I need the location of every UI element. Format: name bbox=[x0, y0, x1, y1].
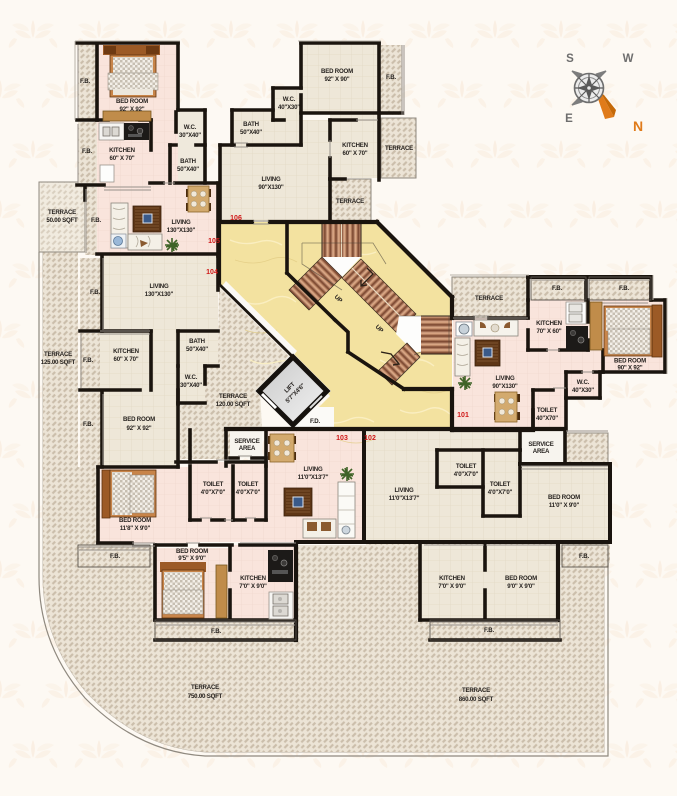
svg-text:BATH: BATH bbox=[189, 338, 205, 345]
svg-text:120.00 SQFT: 120.00 SQFT bbox=[216, 401, 251, 408]
svg-text:11'0"X13'7": 11'0"X13'7" bbox=[298, 474, 329, 481]
svg-text:F.B.: F.B. bbox=[211, 628, 222, 635]
svg-text:LIVING: LIVING bbox=[171, 219, 191, 226]
svg-text:TERRACE: TERRACE bbox=[336, 198, 364, 205]
svg-text:TERRACE: TERRACE bbox=[191, 684, 219, 691]
svg-text:50"X40": 50"X40" bbox=[240, 129, 262, 136]
svg-text:TOILET: TOILET bbox=[456, 463, 477, 470]
svg-text:TOILET: TOILET bbox=[238, 481, 259, 488]
svg-text:LIVING: LIVING bbox=[394, 487, 414, 494]
svg-text:BED ROOM: BED ROOM bbox=[548, 494, 580, 501]
svg-text:11'8" X 9'0": 11'8" X 9'0" bbox=[120, 525, 151, 532]
svg-text:W.C.: W.C. bbox=[577, 379, 590, 386]
svg-text:TERRACE: TERRACE bbox=[475, 295, 503, 302]
svg-text:9'0" X 9'0": 9'0" X 9'0" bbox=[507, 583, 535, 590]
svg-text:BATH: BATH bbox=[243, 121, 259, 128]
svg-text:4'0"X7'0": 4'0"X7'0" bbox=[201, 489, 226, 496]
svg-text:F.B.: F.B. bbox=[110, 553, 121, 560]
svg-text:BED ROOM: BED ROOM bbox=[505, 575, 537, 582]
svg-text:KITCHEN: KITCHEN bbox=[342, 142, 368, 149]
svg-text:TOILET: TOILET bbox=[537, 407, 558, 414]
svg-text:TERRACE: TERRACE bbox=[44, 351, 72, 358]
svg-text:30"X40": 30"X40" bbox=[179, 132, 201, 139]
svg-text:50"X40": 50"X40" bbox=[177, 166, 199, 173]
svg-text:SERVICE: SERVICE bbox=[234, 438, 259, 445]
svg-text:90"X130": 90"X130" bbox=[492, 383, 517, 390]
svg-text:102: 102 bbox=[364, 435, 376, 442]
svg-text:60" X 70": 60" X 70" bbox=[110, 155, 135, 162]
svg-text:F.B.: F.B. bbox=[91, 217, 102, 224]
svg-text:750.00 SQFT: 750.00 SQFT bbox=[188, 693, 223, 700]
svg-text:F.D.: F.D. bbox=[310, 418, 321, 425]
svg-text:KITCHEN: KITCHEN bbox=[536, 320, 562, 327]
svg-text:F.B.: F.B. bbox=[619, 285, 630, 292]
svg-text:7'0" X 9'0": 7'0" X 9'0" bbox=[239, 583, 267, 590]
svg-text:103: 103 bbox=[336, 435, 348, 442]
svg-text:60" X 70": 60" X 70" bbox=[343, 150, 368, 157]
svg-text:125.00 SQFT: 125.00 SQFT bbox=[41, 359, 76, 366]
svg-text:130"X130": 130"X130" bbox=[167, 227, 196, 234]
svg-text:W.C.: W.C. bbox=[184, 124, 197, 131]
svg-text:TERRACE: TERRACE bbox=[48, 209, 76, 216]
svg-text:S: S bbox=[566, 53, 574, 65]
svg-text:SERVICE: SERVICE bbox=[528, 441, 553, 448]
svg-text:9'5" X 9'0": 9'5" X 9'0" bbox=[178, 555, 206, 562]
svg-text:F.B.: F.B. bbox=[83, 421, 94, 428]
svg-text:KITCHEN: KITCHEN bbox=[113, 348, 139, 355]
svg-text:F.B.: F.B. bbox=[90, 289, 101, 296]
svg-text:TOILET: TOILET bbox=[490, 481, 511, 488]
svg-text:BED ROOM: BED ROOM bbox=[614, 358, 646, 365]
svg-text:40"X70": 40"X70" bbox=[536, 415, 558, 422]
svg-text:F.B.: F.B. bbox=[552, 285, 563, 292]
svg-text:104: 104 bbox=[206, 269, 218, 276]
svg-text:AREA: AREA bbox=[239, 445, 256, 452]
svg-text:W.C.: W.C. bbox=[283, 96, 296, 103]
svg-text:4'0"X7'0": 4'0"X7'0" bbox=[454, 471, 479, 478]
svg-text:AREA: AREA bbox=[533, 448, 550, 455]
svg-text:KITCHEN: KITCHEN bbox=[109, 147, 135, 154]
svg-text:E: E bbox=[565, 113, 573, 125]
svg-text:4'0"X7'0": 4'0"X7'0" bbox=[236, 489, 261, 496]
svg-text:BED ROOM: BED ROOM bbox=[116, 98, 148, 105]
svg-text:4'0"X7'0": 4'0"X7'0" bbox=[488, 489, 513, 496]
svg-text:BED ROOM: BED ROOM bbox=[119, 517, 151, 524]
svg-text:TOILET: TOILET bbox=[203, 481, 224, 488]
svg-text:50.00 SQFT: 50.00 SQFT bbox=[46, 217, 78, 224]
svg-text:92" X 92": 92" X 92" bbox=[120, 106, 145, 113]
svg-text:106: 106 bbox=[230, 215, 242, 222]
svg-text:BATH: BATH bbox=[180, 158, 196, 165]
svg-text:70" X 60": 70" X 60" bbox=[537, 328, 562, 335]
svg-text:30"X40": 30"X40" bbox=[180, 382, 202, 389]
svg-text:F.B.: F.B. bbox=[579, 553, 590, 560]
svg-text:W: W bbox=[623, 53, 634, 65]
svg-text:LIVING: LIVING bbox=[261, 176, 281, 183]
svg-text:F.B.: F.B. bbox=[82, 148, 93, 155]
svg-text:F.B.: F.B. bbox=[83, 357, 94, 364]
svg-text:105: 105 bbox=[208, 238, 220, 245]
svg-text:7'0" X 9'0": 7'0" X 9'0" bbox=[438, 583, 466, 590]
svg-text:TERRACE: TERRACE bbox=[462, 687, 490, 694]
svg-text:BED ROOM: BED ROOM bbox=[123, 416, 155, 423]
svg-text:F.B.: F.B. bbox=[386, 74, 397, 81]
svg-text:F.B.: F.B. bbox=[80, 78, 91, 85]
svg-text:90"X130": 90"X130" bbox=[258, 184, 283, 191]
svg-text:TERRACE: TERRACE bbox=[219, 393, 247, 400]
svg-text:130"X130": 130"X130" bbox=[145, 291, 174, 298]
svg-text:TERRACE: TERRACE bbox=[385, 145, 413, 152]
svg-text:F.B.: F.B. bbox=[484, 627, 495, 634]
svg-text:11'0" X 9'0": 11'0" X 9'0" bbox=[549, 502, 580, 509]
svg-text:BED ROOM: BED ROOM bbox=[321, 68, 353, 75]
svg-text:40"X30": 40"X30" bbox=[572, 387, 594, 394]
svg-text:BED ROOM: BED ROOM bbox=[176, 548, 208, 555]
svg-text:90" X 92": 90" X 92" bbox=[618, 365, 643, 372]
svg-text:KITCHEN: KITCHEN bbox=[439, 575, 465, 582]
svg-text:50"X40": 50"X40" bbox=[186, 346, 208, 353]
svg-text:LIVING: LIVING bbox=[149, 283, 169, 290]
svg-text:92" X 92": 92" X 92" bbox=[127, 425, 152, 432]
svg-text:KITCHEN: KITCHEN bbox=[240, 575, 266, 582]
svg-text:W.C.: W.C. bbox=[185, 374, 198, 381]
svg-text:LIVING: LIVING bbox=[303, 466, 323, 473]
svg-text:101: 101 bbox=[457, 412, 469, 419]
svg-text:860.00 SQFT: 860.00 SQFT bbox=[459, 696, 494, 703]
svg-text:60" X 70": 60" X 70" bbox=[114, 356, 139, 363]
svg-text:LIVING: LIVING bbox=[495, 375, 515, 382]
svg-text:11'0"X13'7": 11'0"X13'7" bbox=[389, 495, 420, 502]
svg-text:92" X 90": 92" X 90" bbox=[325, 76, 350, 83]
svg-text:N: N bbox=[633, 118, 643, 134]
svg-text:40"X30": 40"X30" bbox=[278, 104, 300, 111]
